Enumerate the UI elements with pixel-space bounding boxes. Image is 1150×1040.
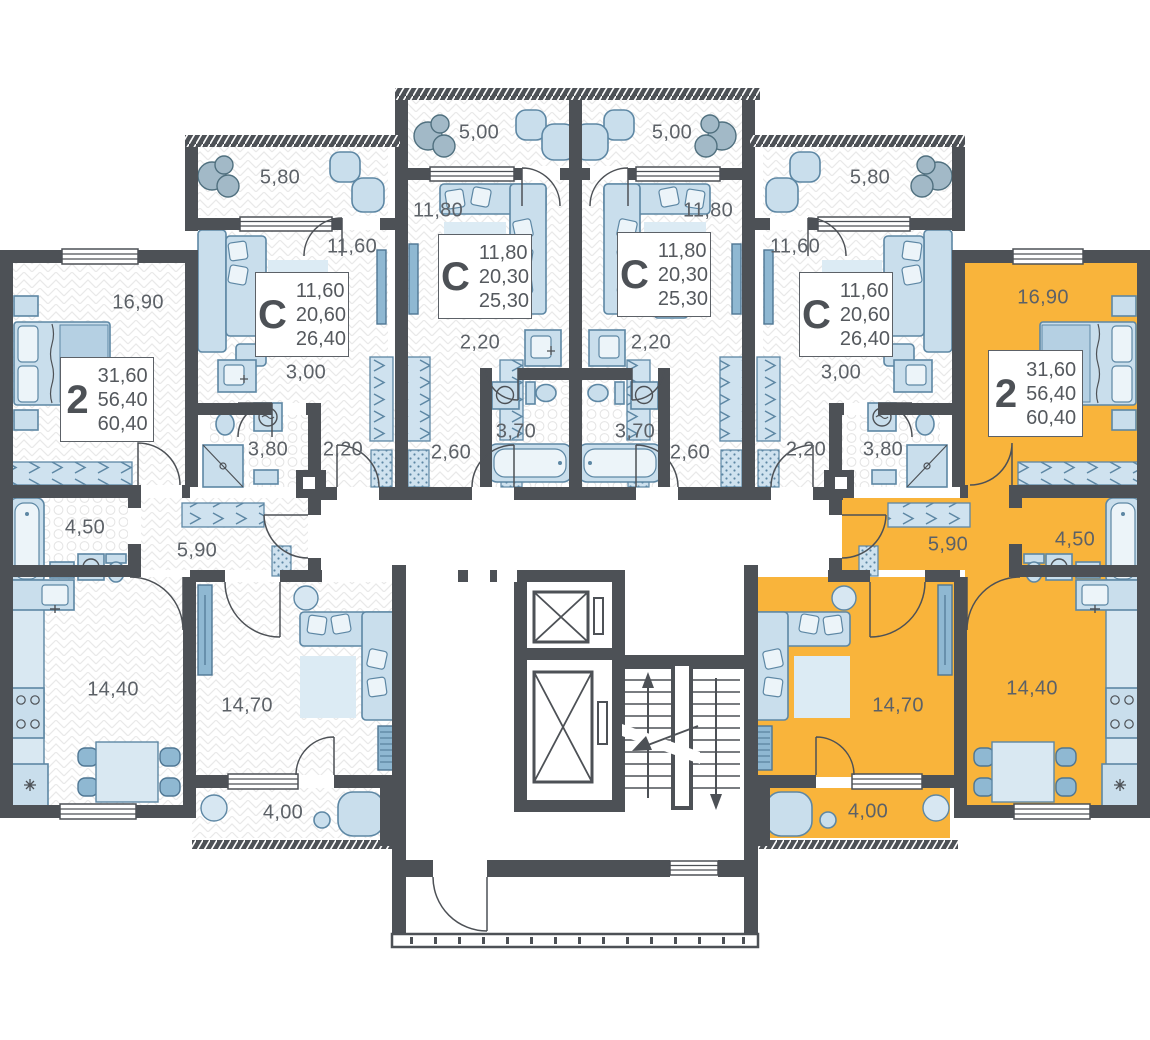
room-area-label: 3,80 [248,439,288,462]
apartment-areas: 31,60 56,40 60,40 [98,364,148,436]
apartment-type-label: С [802,295,831,335]
apartment-card-selected[interactable]: 2 31,60 56,40 60,40 [988,350,1083,437]
room-area-label: 4,00 [848,801,888,824]
apartment-areas: 11,60 20,60 26,40 [840,279,890,351]
apartment-card[interactable]: С 11,80 20,30 25,30 [617,232,711,317]
room-area-label: 16,90 [1017,287,1069,310]
room-area-label: 2,20 [631,332,671,355]
room-area-label: 11,60 [770,236,820,259]
room-area-label: 2,60 [431,442,471,465]
room-area-label: 14,40 [87,679,139,702]
hall-wardrobe-icon [182,503,264,527]
room-area-label: 14,40 [1006,678,1058,701]
apartment-card[interactable]: С 11,80 20,30 25,30 [438,234,532,319]
apartment-type-label: С [620,255,649,295]
room-area-label: 11,60 [327,236,377,259]
room-area-label: 5,90 [928,534,968,557]
room-area-label: 2,20 [460,332,500,355]
room-area-label: 14,70 [221,695,273,718]
room-area-label: 3,80 [863,439,903,462]
apartment-card[interactable]: 2 31,60 56,40 60,40 [60,357,154,442]
room-area-label: 5,80 [260,167,300,190]
floorplan-page: 5,80 5,00 5,00 5,80 16,90 11,60 11,80 11… [0,0,1150,1040]
room-area-label: 3,00 [286,362,326,385]
room-area-label: 3,70 [615,421,655,444]
room-area-label: 16,90 [112,292,164,315]
room-area-label: 14,70 [872,695,924,718]
apartment-type-label: 2 [66,380,88,420]
entry-door-leaf [670,861,718,875]
room-area-label: 3,00 [821,362,861,385]
room-area-label: 5,00 [459,122,499,145]
apartment-areas: 11,80 20,30 25,30 [658,239,708,311]
apartment-areas: 31,60 56,40 60,40 [1026,358,1076,430]
apartment-card[interactable]: С 11,60 20,60 26,40 [255,272,349,357]
room-area-label: 11,80 [683,200,733,223]
apartment-type-label: С [441,257,470,297]
room-area-label: 2,60 [670,442,710,465]
apartment-areas: 11,80 20,30 25,30 [479,241,529,313]
room-area-label: 4,50 [1055,529,1095,552]
room-area-label: 5,00 [652,122,692,145]
room-area-label: 5,90 [177,540,217,563]
apartment-type-label: 2 [995,374,1017,414]
apartment-card[interactable]: С 11,60 20,60 26,40 [799,272,893,357]
apartment-areas: 11,60 20,60 26,40 [296,279,346,351]
room-area-label: 4,50 [65,517,105,540]
hall-wardrobe-icon [888,503,970,527]
room-area-label: 2,20 [323,439,363,462]
room-area-label: 2,20 [786,439,826,462]
apartment-type-label: С [258,295,287,335]
room-area-label: 5,80 [850,167,890,190]
room-area-label: 3,70 [496,421,536,444]
room-area-label: 11,80 [413,200,463,223]
room-area-label: 4,00 [263,802,303,825]
